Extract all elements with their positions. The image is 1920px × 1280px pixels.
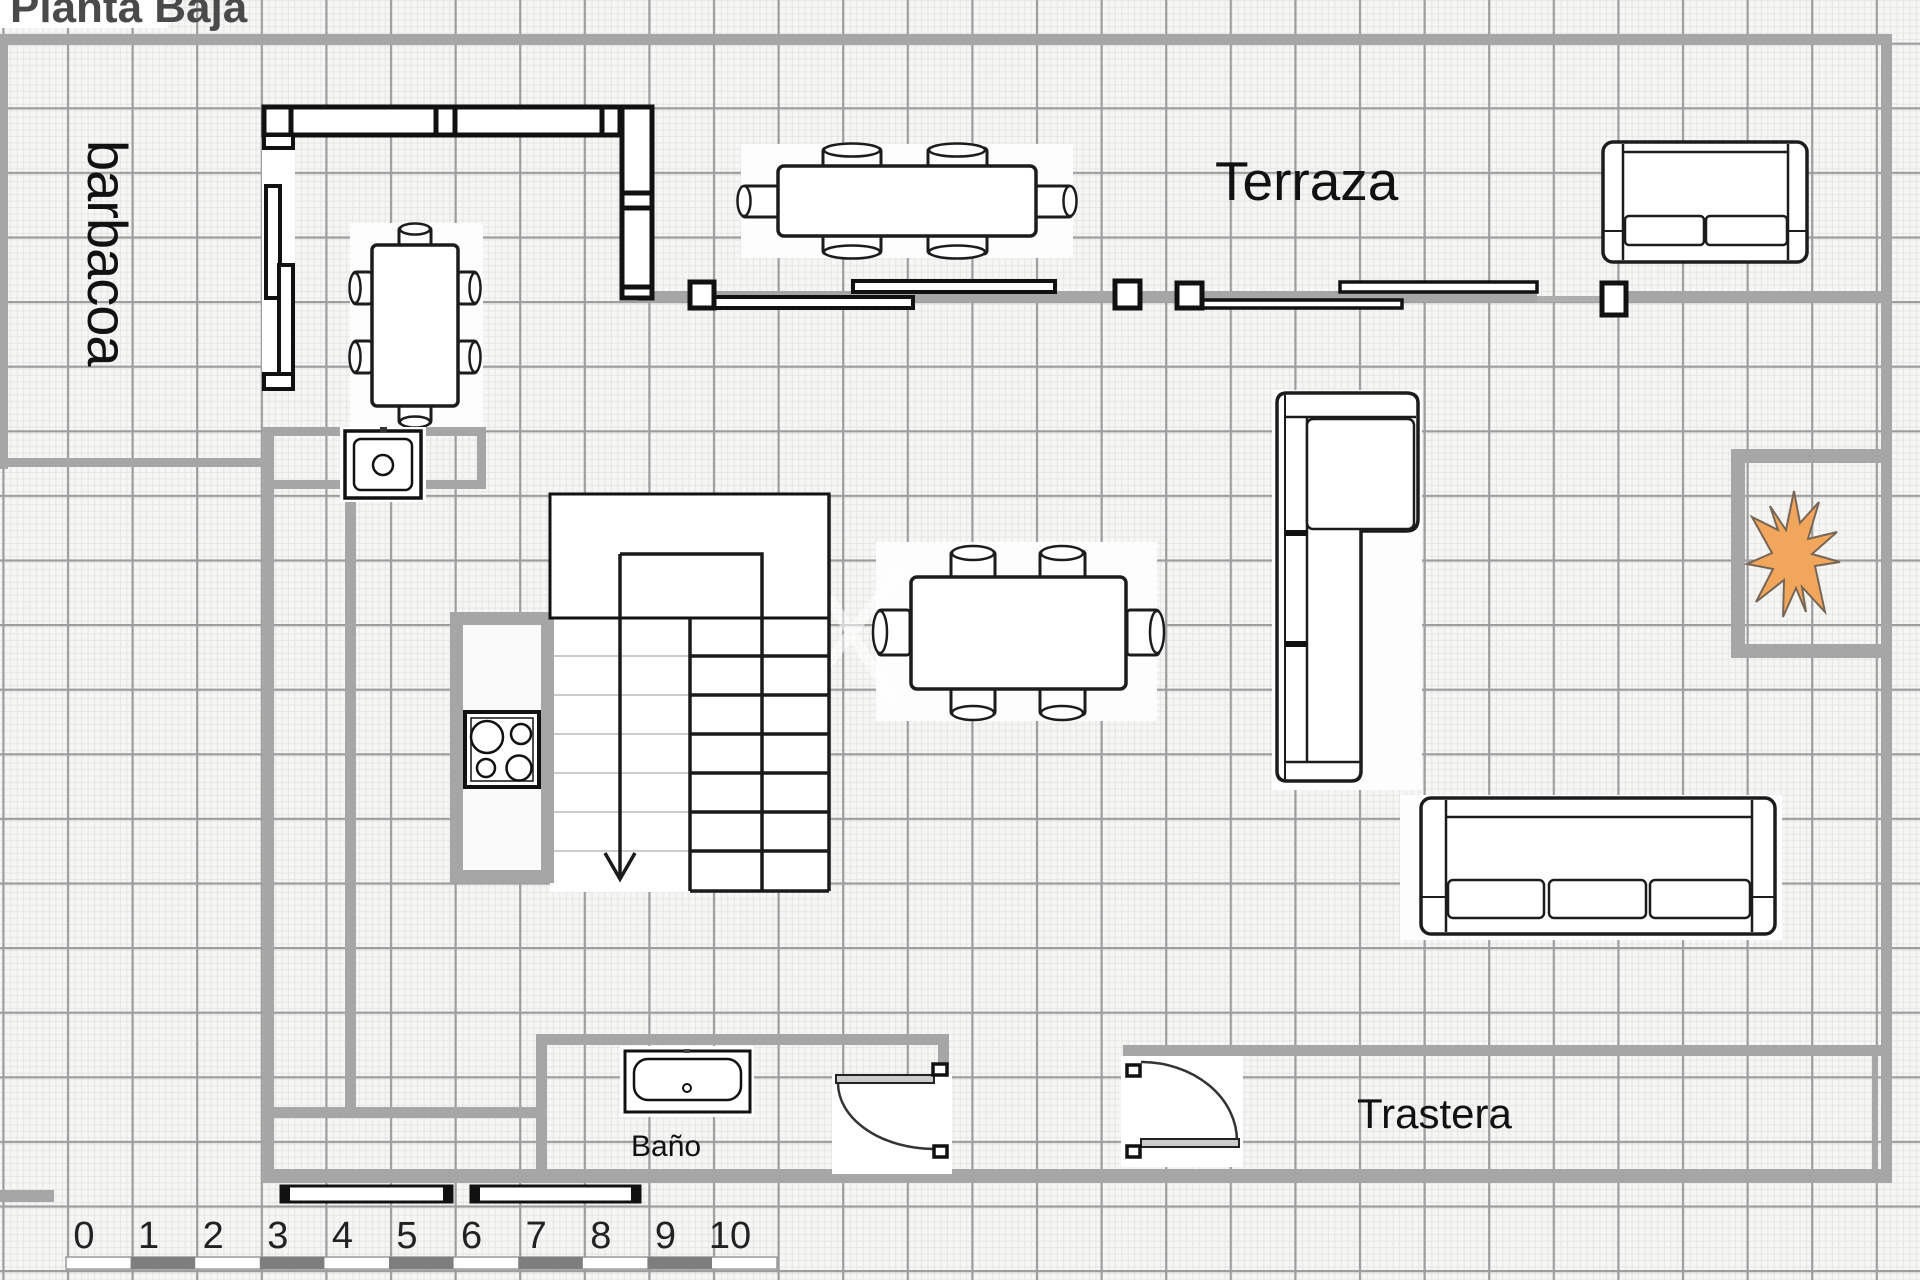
- svg-text:10: 10: [709, 1215, 751, 1257]
- svg-text:barbacoa: barbacoa: [76, 140, 139, 367]
- svg-text:7: 7: [526, 1215, 547, 1257]
- svg-text:5: 5: [396, 1215, 417, 1257]
- svg-text:4: 4: [332, 1215, 353, 1257]
- svg-text:Trastera: Trastera: [1357, 1090, 1512, 1137]
- svg-text:Terraza: Terraza: [1215, 150, 1399, 212]
- svg-text:Planta Baja: Planta Baja: [10, 0, 248, 32]
- svg-text:9: 9: [655, 1215, 676, 1257]
- svg-text:Baño: Baño: [631, 1130, 701, 1163]
- svg-text:2: 2: [203, 1215, 224, 1257]
- svg-text:6: 6: [461, 1215, 482, 1257]
- svg-text:8: 8: [590, 1215, 611, 1257]
- svg-text:0: 0: [73, 1215, 94, 1257]
- svg-text:3: 3: [267, 1215, 288, 1257]
- svg-text:1: 1: [138, 1215, 159, 1257]
